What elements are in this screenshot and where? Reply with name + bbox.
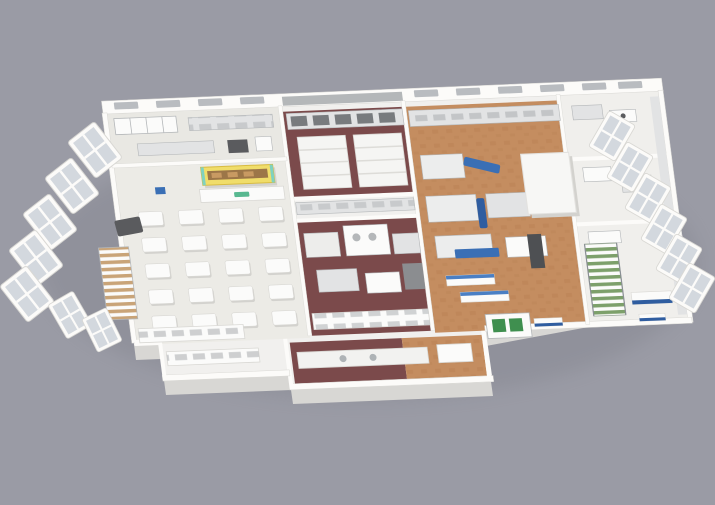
dining-table [218,208,245,225]
equip-2 [343,224,391,256]
machine-a [420,154,465,180]
dining-table [221,234,248,251]
banner-blue [455,248,500,259]
window-icon [414,89,439,97]
green-panel-machine [485,313,532,339]
dining-table [265,258,292,275]
machine-c [485,192,530,218]
window-icon [114,102,139,110]
window-icon [540,84,565,92]
wall-sign-blue [155,187,166,194]
prep-small-unit [255,136,273,151]
wing-equip-5 [588,231,622,244]
dining-table [228,286,255,303]
wing-equip-1 [572,105,604,120]
dining-table [225,260,252,277]
machine-b [425,194,478,222]
dining-table [261,232,288,249]
window-icon [240,96,265,104]
dining-table [178,210,205,227]
dining-table [138,211,165,228]
cold-room-box [521,152,580,218]
dining-table [181,236,208,253]
window-icon [582,82,607,90]
window-icon [456,88,481,96]
window-icon [198,98,223,106]
serving-counter [197,164,286,202]
window-icon [618,81,643,89]
equip-5 [365,272,402,293]
dining-table [258,206,285,223]
dark-fridge [402,263,425,290]
window-icon [498,86,523,94]
equip-3 [392,233,421,254]
dining-table [185,262,212,279]
dining-table [141,237,168,254]
dining-table [148,289,175,306]
brand-logo [234,192,250,198]
dining-table [188,288,215,305]
cook-room-lower [301,223,430,330]
equip-1 [304,232,341,257]
pass-window-cabinet [437,343,473,362]
dining-table [145,263,172,280]
window-icon [156,100,181,108]
equip-4 [316,269,359,293]
render-canvas [0,0,715,505]
floorplan-render [0,0,715,505]
prep-dark-unit [227,139,249,153]
dining-table [272,310,299,327]
dining-table [268,284,295,301]
